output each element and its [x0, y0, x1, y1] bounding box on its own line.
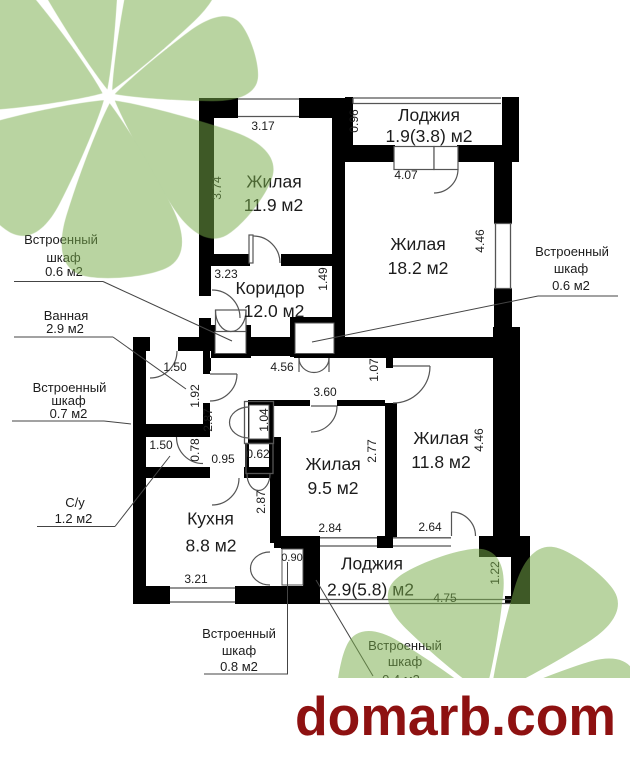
svg-text:Встроенный: Встроенный — [535, 244, 609, 259]
svg-text:Кухня: Кухня — [187, 509, 234, 529]
svg-text:4.46: 4.46 — [473, 229, 487, 253]
svg-text:1.49: 1.49 — [316, 267, 330, 291]
svg-text:11.8 м2: 11.8 м2 — [411, 452, 470, 472]
svg-text:3.23: 3.23 — [214, 267, 238, 281]
svg-text:1.04: 1.04 — [257, 408, 271, 432]
svg-text:0.95: 0.95 — [211, 452, 235, 466]
svg-text:Жилая: Жилая — [413, 428, 468, 448]
svg-text:0.7 м2: 0.7 м2 — [50, 406, 88, 421]
svg-text:3.21: 3.21 — [184, 572, 208, 586]
svg-text:1.50: 1.50 — [149, 438, 173, 452]
svg-text:шкаф: шкаф — [554, 261, 589, 276]
svg-text:3.17: 3.17 — [251, 119, 275, 133]
svg-text:1.50: 1.50 — [163, 360, 187, 374]
svg-text:3.60: 3.60 — [313, 385, 337, 399]
svg-text:8.8 м2: 8.8 м2 — [186, 536, 237, 556]
svg-text:шкаф: шкаф — [222, 643, 257, 658]
svg-text:2.9 м2: 2.9 м2 — [46, 321, 84, 336]
svg-text:2.64: 2.64 — [418, 520, 442, 534]
svg-text:1.92: 1.92 — [188, 384, 202, 408]
svg-text:0.90: 0.90 — [281, 552, 302, 564]
svg-text:1.07: 1.07 — [367, 358, 381, 382]
svg-text:0.78: 0.78 — [188, 438, 202, 462]
svg-text:Лоджия: Лоджия — [398, 105, 460, 125]
svg-text:domarb.com: domarb.com — [295, 685, 616, 747]
svg-text:0.6 м2: 0.6 м2 — [552, 278, 590, 293]
svg-text:0.96: 0.96 — [347, 109, 361, 133]
svg-text:4.07: 4.07 — [394, 168, 418, 182]
svg-text:0.8 м2: 0.8 м2 — [220, 659, 258, 674]
svg-text:Встроенный: Встроенный — [202, 626, 276, 641]
svg-text:1.9(3.8) м2: 1.9(3.8) м2 — [386, 126, 473, 146]
svg-text:С/у: С/у — [65, 495, 85, 510]
svg-text:Лоджия: Лоджия — [341, 554, 403, 574]
svg-text:2.84: 2.84 — [318, 521, 342, 535]
svg-text:Жилая: Жилая — [305, 454, 360, 474]
svg-text:2.87: 2.87 — [201, 408, 215, 432]
svg-text:Жилая: Жилая — [390, 234, 445, 254]
svg-text:12.0 м2: 12.0 м2 — [244, 301, 305, 321]
svg-text:18.2 м2: 18.2 м2 — [388, 258, 449, 278]
svg-text:2.77: 2.77 — [365, 439, 379, 463]
svg-text:Коридор: Коридор — [235, 278, 304, 298]
svg-text:1.2 м2: 1.2 м2 — [55, 511, 93, 526]
svg-text:9.5 м2: 9.5 м2 — [308, 478, 359, 498]
svg-text:4.56: 4.56 — [270, 360, 294, 374]
svg-text:4.46: 4.46 — [472, 428, 486, 452]
svg-text:2.87: 2.87 — [254, 490, 268, 514]
svg-text:0.62: 0.62 — [246, 447, 270, 461]
